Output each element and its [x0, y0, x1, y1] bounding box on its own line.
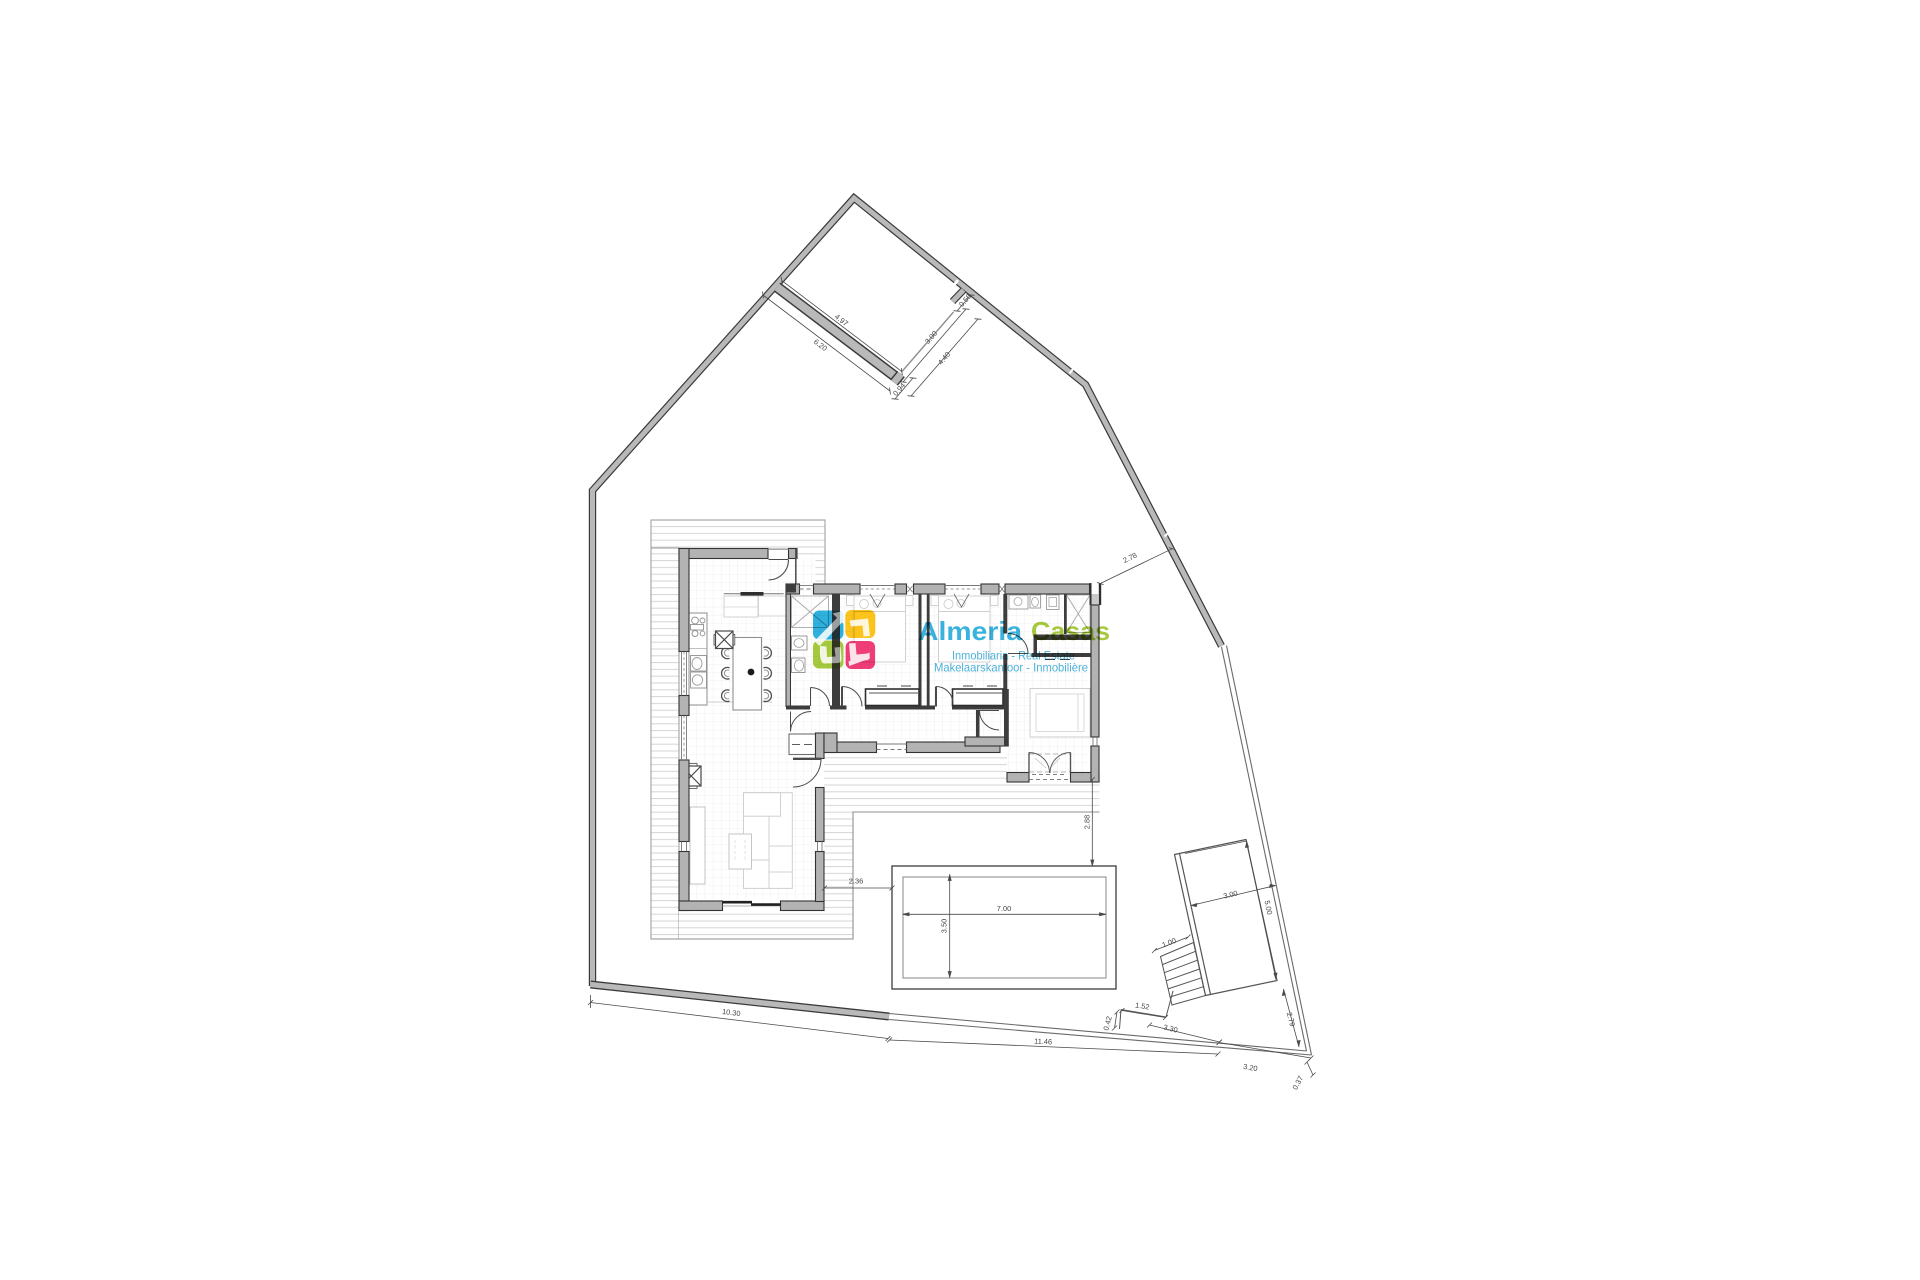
svg-text:Casas: Casas [1031, 616, 1110, 646]
svg-text:Almeria: Almeria [918, 616, 1023, 646]
svg-text:2.88: 2.88 [1083, 815, 1092, 829]
svg-text:3.50: 3.50 [940, 919, 949, 933]
svg-text:11.46: 11.46 [1034, 1037, 1052, 1047]
svg-text:2.36: 2.36 [849, 877, 863, 886]
svg-text:7.00: 7.00 [997, 904, 1011, 913]
svg-text:Makelaarskantoor - Inmobilière: Makelaarskantoor - Inmobilière [934, 662, 1088, 675]
